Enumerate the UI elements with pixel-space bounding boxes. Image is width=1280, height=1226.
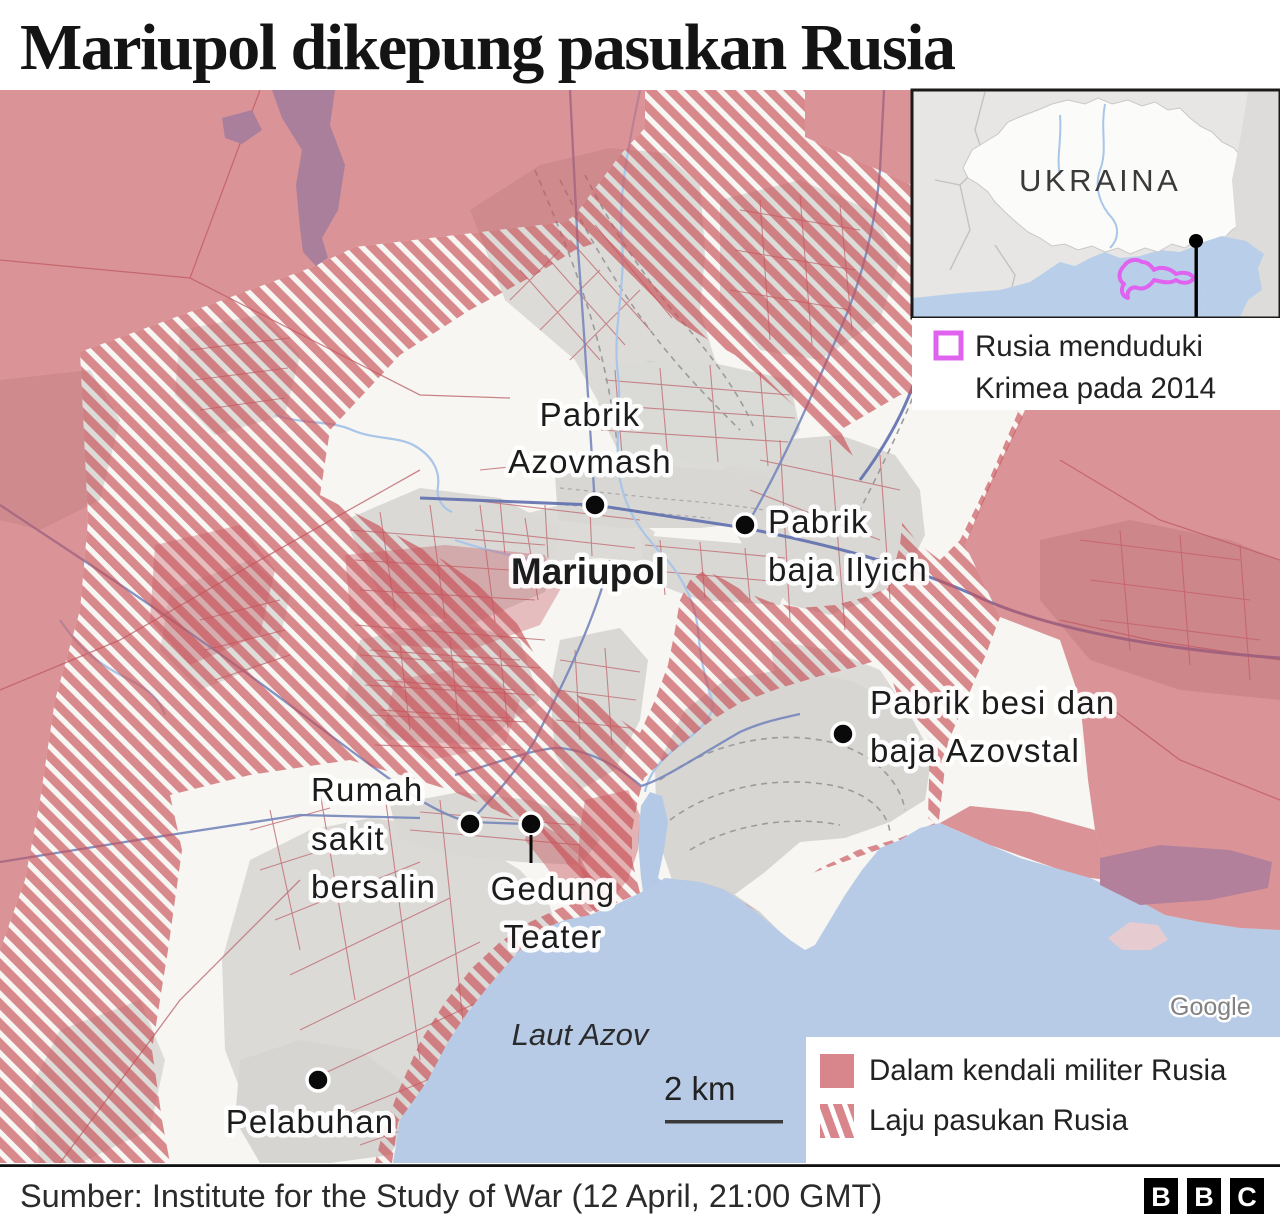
svg-text:baja Ilyich: baja Ilyich (768, 551, 928, 588)
svg-text:UKRAINA: UKRAINA (1019, 163, 1181, 198)
svg-text:Pabrik besi dan: Pabrik besi dan (870, 684, 1115, 721)
svg-text:Mariupol dikepung pasukan Rusi: Mariupol dikepung pasukan Rusia (20, 11, 956, 84)
svg-text:bersalin: bersalin (311, 868, 436, 905)
svg-text:Laut Azov: Laut Azov (512, 1017, 650, 1052)
svg-text:sakit: sakit (311, 820, 385, 857)
svg-text:Teater: Teater (504, 918, 603, 955)
svg-text:Mariupol: Mariupol (511, 551, 665, 592)
svg-text:2 km: 2 km (664, 1070, 736, 1107)
svg-text:baja Azovstal: baja Azovstal (870, 732, 1080, 769)
svg-text:C: C (1237, 1182, 1257, 1212)
svg-text:Azovmash: Azovmash (508, 443, 672, 480)
svg-text:Rumah: Rumah (311, 771, 423, 808)
svg-text:Krimea pada 2014: Krimea pada 2014 (975, 372, 1216, 405)
svg-text:B: B (1151, 1182, 1171, 1212)
svg-text:Pabrik: Pabrik (540, 396, 641, 433)
svg-text:Pelabuhan: Pelabuhan (226, 1103, 395, 1140)
svg-text:Pabrik: Pabrik (768, 503, 869, 540)
svg-text:Laju pasukan Rusia: Laju pasukan Rusia (869, 1104, 1129, 1137)
svg-text:Sumber: Institute for the Stud: Sumber: Institute for the Study of War (… (20, 1178, 882, 1214)
svg-text:Rusia menduduki: Rusia menduduki (975, 330, 1203, 363)
svg-text:Gedung: Gedung (491, 870, 616, 907)
svg-text:B: B (1194, 1182, 1214, 1212)
svg-text:Dalam kendali militer Rusia: Dalam kendali militer Rusia (869, 1054, 1227, 1087)
svg-text:Google: Google (1170, 993, 1251, 1021)
